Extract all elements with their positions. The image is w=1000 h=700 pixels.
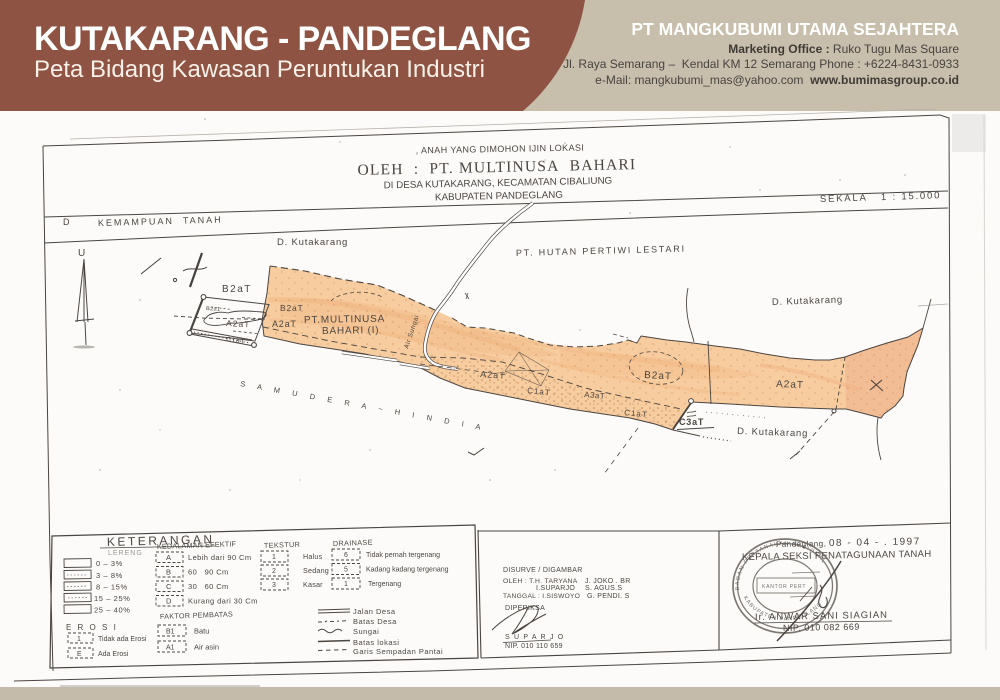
svg-text:08 - 04 - . 1997: 08 - 04 - . 1997 — [829, 536, 921, 549]
svg-text:Garis Sempadan Pantai: Garis Sempadan Pantai — [353, 647, 443, 656]
svg-text:A2aT: A2aT — [226, 318, 251, 329]
svg-text:B: B — [166, 568, 171, 577]
svg-text:OLEH : T.H. TARYANA: OLEH : T.H. TARYANA — [503, 578, 578, 585]
svg-text:B2aT: B2aT — [222, 284, 252, 295]
svg-text:Batas lokasi: Batas lokasi — [353, 638, 399, 647]
svg-text:3: 3 — [272, 582, 276, 589]
svg-text:Ada Erosi: Ada Erosi — [98, 651, 129, 658]
svg-text:A: A — [166, 553, 171, 562]
svg-text:E R O S I: E R O S I — [66, 623, 118, 632]
svg-text:Kurang dari 30 Cm: Kurang dari 30 Cm — [188, 597, 258, 606]
svg-text:G. PENDI. S: G. PENDI. S — [587, 593, 630, 600]
svg-text:C3aT: C3aT — [679, 417, 704, 427]
svg-text:15 – 25%: 15 – 25% — [94, 594, 131, 603]
svg-text:NIP. 010 082 669: NIP. 010 082 669 — [783, 622, 860, 633]
svg-text:0 – 3%: 0 – 3% — [96, 559, 123, 568]
svg-text:B2aT: B2aT — [644, 370, 672, 382]
svg-text:Tidak ada Erosi: Tidak ada Erosi — [98, 636, 147, 643]
svg-text:B1: B1 — [166, 629, 175, 636]
svg-text:Sungai: Sungai — [353, 627, 379, 636]
svg-text:LERENG: LERENG — [108, 550, 143, 557]
svg-text:E: E — [77, 651, 82, 658]
svg-text:BAHARI (I): BAHARI (I) — [322, 325, 380, 337]
svg-text:Halus: Halus — [303, 552, 323, 561]
svg-text:6: 6 — [344, 552, 348, 559]
svg-text:30 60 Cm: 30 60 Cm — [188, 582, 229, 591]
svg-text:1: 1 — [272, 554, 276, 561]
svg-text:1: 1 — [77, 636, 81, 643]
svg-text:Tergenang: Tergenang — [368, 581, 401, 588]
svg-text:Sedang: Sedang — [303, 566, 329, 575]
svg-text:Kadang kadang tergenang: Kadang kadang tergenang — [366, 567, 449, 574]
svg-text:KANTOR PERT: KANTOR PERT — [762, 584, 806, 590]
svg-text:A2aT: A2aT — [272, 319, 297, 329]
svg-text:S U P A R J O: S U P A R J O — [505, 634, 564, 641]
svg-text:D: D — [63, 217, 71, 227]
svg-text:Kasar: Kasar — [303, 580, 323, 589]
svg-text:B2aT: B2aT — [280, 303, 304, 313]
svg-text:S. AGUS.S: S. AGUS.S — [585, 585, 622, 592]
svg-text:A1: A1 — [166, 645, 175, 652]
svg-text:DISURVE / DIGAMBAR: DISURVE / DIGAMBAR — [503, 567, 583, 574]
svg-text:A2aT: A2aT — [776, 379, 804, 391]
svg-text:25 – 40%: 25 – 40% — [94, 606, 131, 615]
svg-text:C: C — [166, 582, 172, 591]
svg-text:Batas Desa: Batas Desa — [353, 617, 397, 626]
svg-text:I.SUPARJO: I.SUPARJO — [536, 585, 575, 592]
svg-text:Jalan Desa: Jalan Desa — [353, 607, 396, 616]
svg-text:2: 2 — [272, 568, 276, 575]
svg-text:B2a1: B2a1 — [206, 306, 221, 313]
svg-text:TEKSTUR: TEKSTUR — [264, 540, 301, 550]
svg-text:D: D — [166, 597, 172, 606]
svg-text:Lebih dari 90 Cm: Lebih dari 90 Cm — [188, 553, 252, 562]
svg-text:D. Kutakarang: D. Kutakarang — [277, 237, 348, 248]
svg-text:5: 5 — [344, 567, 348, 574]
svg-text:J. JOKO . BR: J. JOKO . BR — [585, 578, 631, 585]
svg-text:3 – 8%: 3 – 8% — [96, 571, 123, 580]
svg-text:Air asin: Air asin — [194, 643, 219, 652]
svg-text:TANGGAL : I.SISWOYO: TANGGAL : I.SISWOYO — [503, 593, 580, 600]
svg-text:DRAINASE: DRAINASE — [333, 538, 373, 548]
svg-text:1: 1 — [344, 581, 348, 588]
svg-text:U: U — [78, 248, 85, 259]
svg-text:60 90 Cm: 60 90 Cm — [188, 568, 229, 577]
svg-text:Tidak pernah tergenang: Tidak pernah tergenang — [366, 552, 440, 559]
svg-text:8 – 15%: 8 – 15% — [96, 583, 128, 592]
svg-text:Batu: Batu — [194, 627, 209, 636]
svg-text:NIP. 010 110 659: NIP. 010 110 659 — [505, 643, 563, 650]
